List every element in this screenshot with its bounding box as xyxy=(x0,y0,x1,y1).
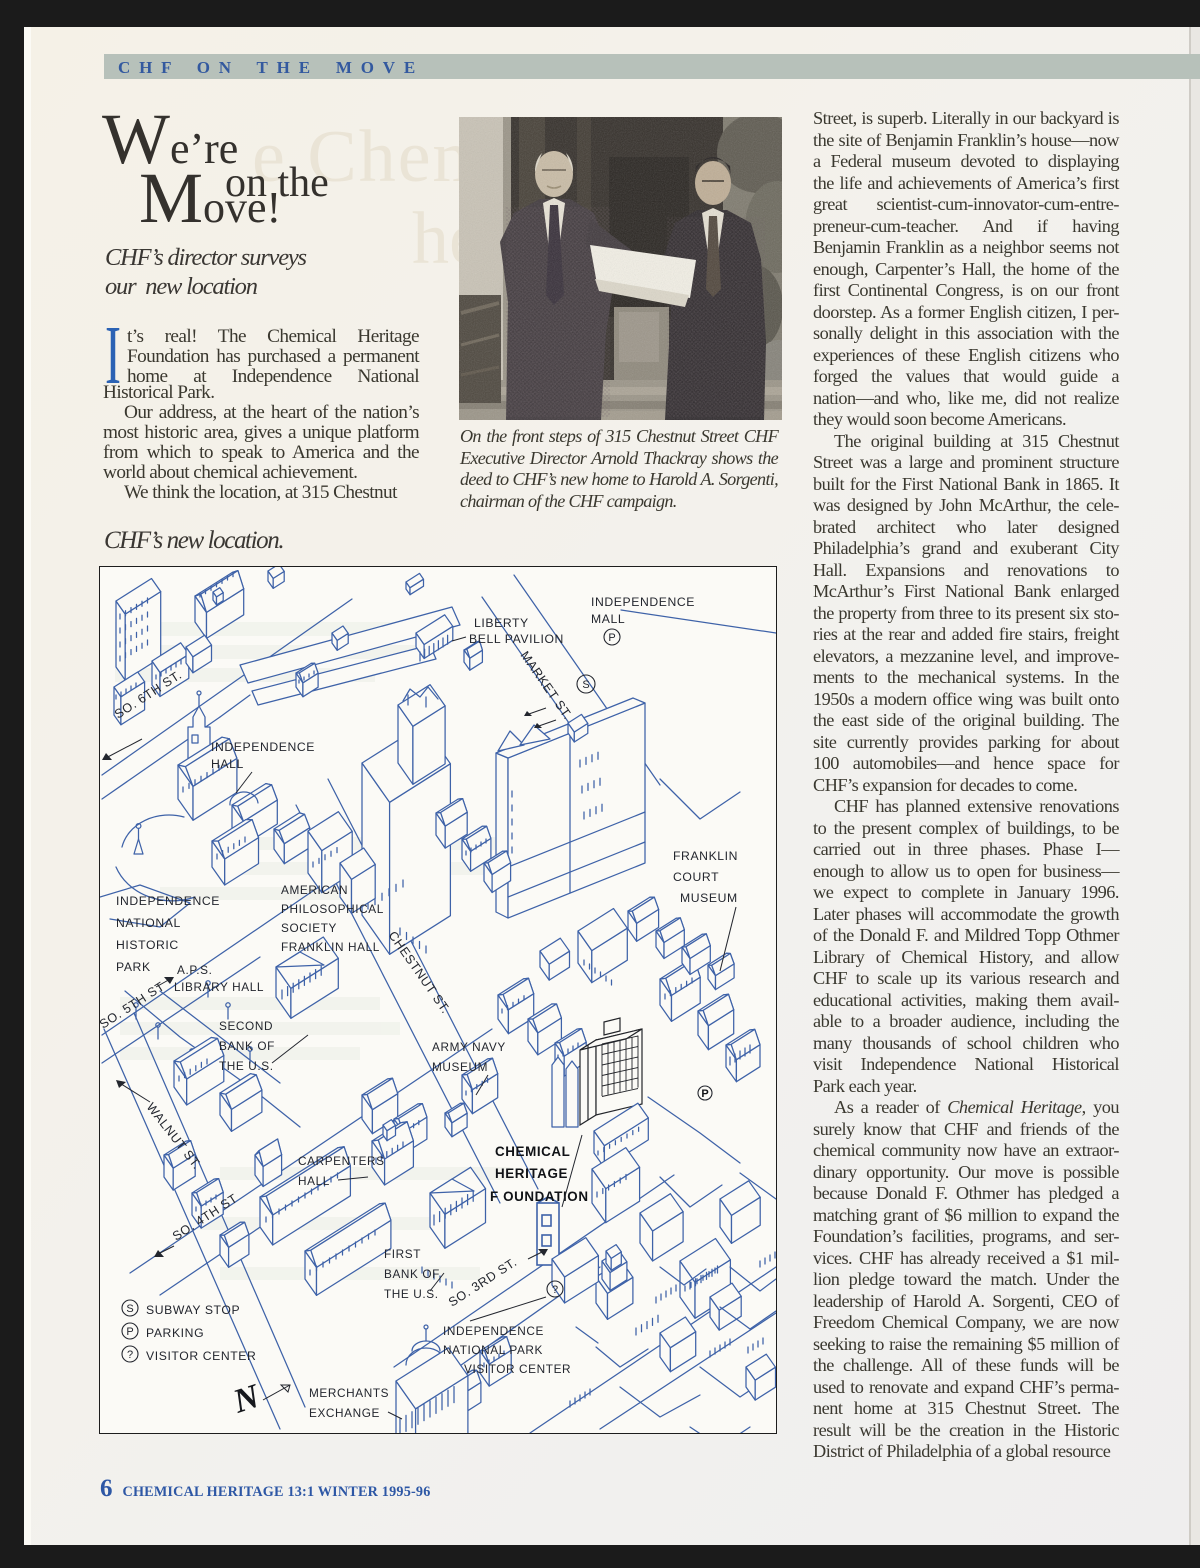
svg-text:HALL: HALL xyxy=(211,757,244,771)
svg-text:P: P xyxy=(126,1326,133,1338)
svg-text:ARMY NAVY: ARMY NAVY xyxy=(432,1040,506,1054)
svg-text:THE U.S.: THE U.S. xyxy=(219,1059,274,1073)
svg-text:F OUNDATION: F OUNDATION xyxy=(490,1189,589,1204)
svg-text:SECOND: SECOND xyxy=(219,1019,273,1033)
svg-text:LIBERTY: LIBERTY xyxy=(474,616,529,630)
svg-text:HISTORIC: HISTORIC xyxy=(116,938,179,952)
svg-text:S: S xyxy=(582,679,589,691)
svg-text:MALL: MALL xyxy=(591,612,625,626)
svg-text:BELL PAVILION: BELL PAVILION xyxy=(469,632,564,646)
svg-text:INDEPENDENCE: INDEPENDENCE xyxy=(211,740,315,754)
svg-text:THE U.S.: THE U.S. xyxy=(384,1287,439,1301)
svg-text:PARK: PARK xyxy=(116,960,151,974)
svg-text:HALL: HALL xyxy=(298,1174,330,1188)
svg-text:VISITOR CENTER: VISITOR CENTER xyxy=(146,1349,256,1363)
svg-text:S: S xyxy=(126,1303,133,1315)
svg-text:NATIONAL: NATIONAL xyxy=(116,916,181,930)
svg-text:?: ? xyxy=(552,1284,558,1296)
svg-text:A.P.S.: A.P.S. xyxy=(177,963,213,977)
svg-text:BANK OF: BANK OF xyxy=(219,1039,275,1053)
svg-text:P: P xyxy=(608,632,615,644)
svg-text:FRANKLIN HALL: FRANKLIN HALL xyxy=(281,940,380,954)
svg-text:MUSEUM: MUSEUM xyxy=(680,891,738,905)
svg-text:INDEPENDENCE: INDEPENDENCE xyxy=(116,894,220,908)
svg-text:MUSEUM: MUSEUM xyxy=(432,1060,488,1074)
svg-text:CHEMICAL: CHEMICAL xyxy=(495,1144,570,1159)
svg-text:INDEPENDENCE: INDEPENDENCE xyxy=(443,1324,544,1338)
svg-text:AMERICAN: AMERICAN xyxy=(281,883,348,897)
svg-text:?: ? xyxy=(127,1349,133,1361)
svg-text:PARKING: PARKING xyxy=(146,1326,204,1340)
svg-text:VISITOR CENTER: VISITOR CENTER xyxy=(464,1362,571,1376)
svg-text:NATIONAL PARK: NATIONAL PARK xyxy=(443,1343,543,1357)
svg-text:SUBWAY STOP: SUBWAY STOP xyxy=(146,1303,240,1317)
svg-text:COURT: COURT xyxy=(673,870,719,884)
svg-text:PHILOSOPHICAL: PHILOSOPHICAL xyxy=(281,902,384,916)
svg-text:FRANKLIN: FRANKLIN xyxy=(673,849,738,863)
svg-text:P: P xyxy=(701,1088,708,1100)
svg-text:SOCIETY: SOCIETY xyxy=(281,921,337,935)
svg-text:EXCHANGE: EXCHANGE xyxy=(309,1406,380,1420)
svg-text:HERITAGE: HERITAGE xyxy=(495,1166,568,1181)
svg-text:LIBRARY HALL: LIBRARY HALL xyxy=(174,980,264,994)
svg-text:CARPENTERS: CARPENTERS xyxy=(298,1154,385,1168)
svg-text:INDEPENDENCE: INDEPENDENCE xyxy=(591,595,695,609)
svg-text:MERCHANTS: MERCHANTS xyxy=(309,1386,389,1400)
svg-text:FIRST: FIRST xyxy=(384,1247,421,1261)
svg-text:BANK OF: BANK OF xyxy=(384,1267,440,1281)
